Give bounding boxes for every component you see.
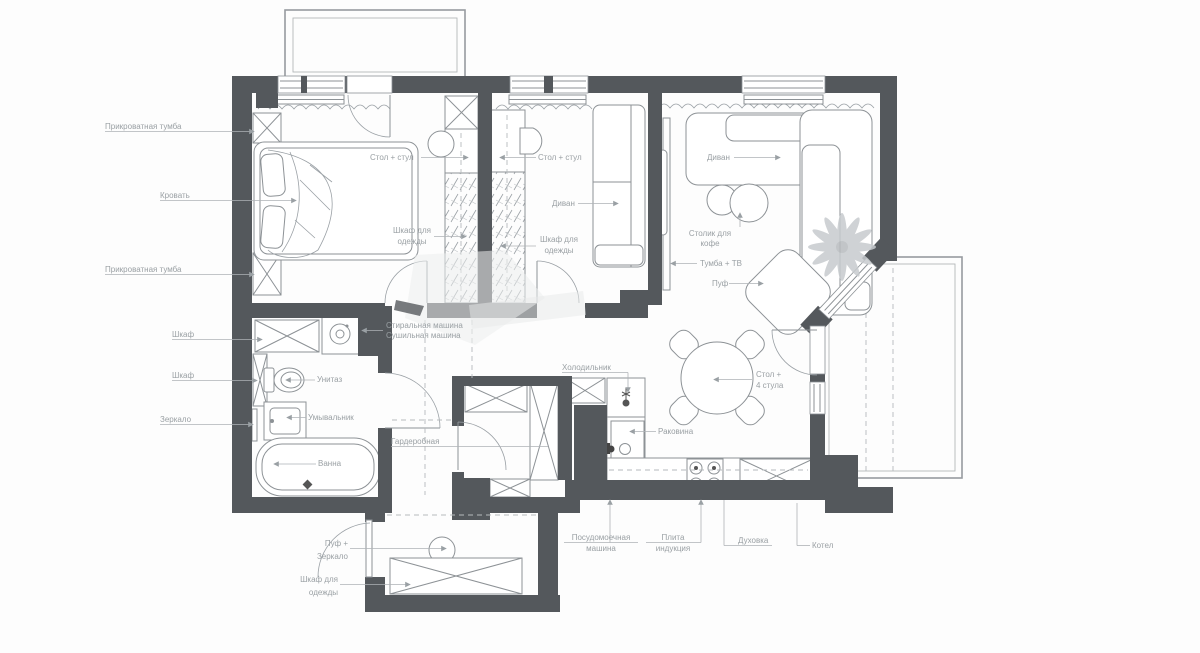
label-dining: Стол + [756,370,782,379]
label-desk2: Стол + стул [538,153,582,162]
coffee-tables [707,184,768,222]
label-bath: Ванна [318,459,342,468]
door-bedroom1-balcony [348,95,390,137]
hall-wardrobe [390,558,522,594]
label-bed: Кровать [160,191,190,200]
dining-set [666,326,768,428]
balcony-top [285,10,465,80]
label-dining: 4 стула [756,381,784,390]
label-kitchen-sink: Раковина [658,427,694,436]
label-hall-pouf: Пуф + [325,539,348,548]
label-mirror: Зеркало [160,415,192,424]
label-toilet: Унитаз [317,375,343,384]
floor-plan-page: Прикроватная тумба Кровать Прикроватная … [0,0,1200,653]
label-cabinet-top: Шкаф [172,330,194,339]
window-living [742,76,825,93]
label-desk1: Стол + стул [370,153,414,162]
label-coffee: Столик для [689,229,731,238]
label-stove: индукция [656,544,690,553]
window-bedroom2 [510,76,588,93]
window-bedroom1 [278,76,345,93]
dining-table [681,342,753,414]
label-dryer: Сушильная машина [386,331,461,340]
mirror [252,409,257,441]
label-bedside-bottom: Прикроватная тумба [105,265,182,274]
label-hall-wardrobe: одежды [309,588,338,597]
curtain-wave [496,105,592,109]
label-pouf-living: Пуф [712,279,729,288]
label-walkin-closet: Гардеробная [391,437,439,446]
label-fridge: Холодильник [562,363,611,372]
kitchen-balcony-door-opening [810,326,825,374]
label-dishwasher: машина [586,544,616,553]
floor-plan-drawing: Прикроватная тумба Кровать Прикроватная … [0,0,1200,653]
label-cabinet-mid: Шкаф [172,371,194,380]
label-tv: Тумба + ТВ [700,259,742,268]
sofa-bedroom2 [593,105,645,267]
fridge [607,378,645,417]
label-sofa2: Диван [552,199,575,208]
label-wardrobe2: Шкаф для [540,235,578,244]
label-oven: Духовка [738,536,769,545]
label-wardrobe1: одежды [397,237,426,246]
label-washer: Стиральная машина [386,321,463,330]
label-washbasin: Умывальник [308,413,354,422]
label-coffee: кофе [700,239,720,248]
balcony-door-opening [347,76,392,93]
desk-chair [520,128,542,154]
label-sofa-living: Диван [707,153,730,162]
label-hall-pouf: Зеркало [317,552,349,561]
curtain-wave [658,104,874,108]
label-stove: Плита [662,533,685,542]
washing-machine [322,314,359,354]
bedside-table-top [253,113,281,143]
label-bedside-top: Прикроватная тумба [105,122,182,131]
label-wardrobe1: Шкаф для [393,226,431,235]
door-closet [458,422,506,470]
washbasin [264,402,306,440]
label-wardrobe2: одежды [544,246,573,255]
window-kitchen [810,382,825,414]
cabinet-top [255,320,319,352]
hall-furniture [390,537,522,594]
label-dishwasher: Посудомоечная [572,533,631,542]
column [256,88,278,108]
label-boiler: Котел [812,541,834,550]
label-hall-wardrobe: Шкаф для [300,575,338,584]
desk-chair [428,131,454,157]
